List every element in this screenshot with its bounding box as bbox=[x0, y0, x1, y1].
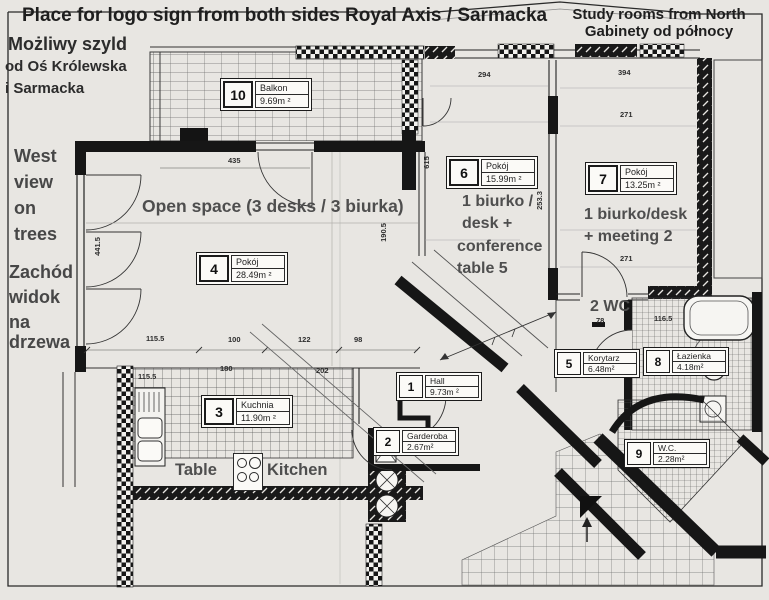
room6-note-1: 1 biurko / bbox=[462, 193, 533, 211]
room-name: W.C. bbox=[654, 443, 706, 454]
room-label-pokoj-6: 6 Pokój 15.99m ² bbox=[446, 156, 538, 189]
room-area: 9.69m ² bbox=[256, 95, 308, 107]
room-name: Korytarz bbox=[584, 353, 636, 364]
title-study-rooms: Study rooms from North bbox=[556, 6, 762, 23]
room-name: Pokój bbox=[232, 256, 284, 269]
zachod-note-1: Zachód bbox=[9, 262, 73, 283]
west-note-4: trees bbox=[14, 224, 57, 245]
dimension-label: 116.5 bbox=[654, 314, 672, 323]
dimension-label: 190.5 bbox=[379, 223, 388, 242]
zachod-note-2: widok bbox=[9, 287, 60, 308]
room-number: 6 bbox=[449, 159, 479, 186]
room-name: Balkon bbox=[256, 82, 308, 95]
room-area: 15.99m ² bbox=[482, 173, 534, 185]
title-gabinety: Gabinety od północy bbox=[556, 23, 762, 40]
room-number: 5 bbox=[557, 352, 581, 375]
room6-note-2: desk + bbox=[462, 215, 512, 233]
dimension-label: 253.3 bbox=[535, 191, 544, 210]
room-name: Kuchnia bbox=[237, 399, 289, 412]
room-number: 10 bbox=[223, 81, 253, 108]
dimension-label: 100 bbox=[228, 335, 241, 344]
room-area: 6.48m² bbox=[584, 364, 636, 374]
room-name: Pokój bbox=[621, 166, 673, 179]
dimension-label: 271 bbox=[620, 110, 633, 119]
kitchen-sink-icon bbox=[138, 418, 162, 438]
floor-plan-page: { "page": { "background": "#e8e6e2", "in… bbox=[0, 0, 769, 600]
west-note-3: on bbox=[14, 198, 36, 219]
room7-note-2: + meeting 2 bbox=[584, 228, 672, 246]
kitchen-sink-icon bbox=[138, 441, 162, 461]
dimension-label: 115.5 bbox=[138, 372, 156, 381]
dimension-label: 122 bbox=[298, 335, 311, 344]
dimension-label: 180 bbox=[220, 364, 233, 373]
room-label-pokoj-7: 7 Pokój 13.25m ² bbox=[585, 162, 677, 195]
room-area: 13.25m ² bbox=[621, 179, 673, 191]
room-name: Pokój bbox=[482, 160, 534, 173]
title-logo-sign: Place for logo sign from both sides Roya… bbox=[22, 5, 547, 27]
room-area: 2.67m² bbox=[403, 442, 455, 452]
west-note-2: view bbox=[14, 172, 53, 193]
room-name: Hall bbox=[426, 376, 478, 387]
dimension-label: 115.5 bbox=[146, 334, 164, 343]
stove-icon bbox=[233, 453, 263, 491]
room-name: Łazienka bbox=[673, 351, 725, 362]
room-number: 9 bbox=[627, 442, 651, 465]
room-label-wc: 9 W.C. 2.28m² bbox=[624, 439, 710, 468]
table-note: Table bbox=[175, 461, 217, 480]
dimension-label: 441.5 bbox=[93, 237, 102, 256]
dimension-label: 78 bbox=[596, 316, 604, 325]
dimension-label: 435 bbox=[228, 156, 241, 165]
kitchen-note: Kitchen bbox=[267, 461, 328, 480]
room-number: 3 bbox=[204, 398, 234, 425]
zachod-note-3: na bbox=[9, 312, 30, 333]
left-note-mozliwy-szyld: Możliwy szyld bbox=[8, 34, 127, 55]
room6-note-3: conference bbox=[457, 238, 542, 256]
bathtub-icon bbox=[684, 296, 754, 340]
room-number: 1 bbox=[399, 375, 423, 398]
room-area: 2.28m² bbox=[654, 454, 706, 464]
dimension-label: 98 bbox=[354, 335, 362, 344]
left-note-od-os: od Oś Królewska bbox=[5, 58, 127, 75]
room-label-korytarz: 5 Korytarz 6.48m² bbox=[554, 349, 640, 378]
dimension-label: 394 bbox=[618, 68, 631, 77]
room-area: 9.73m ² bbox=[426, 387, 478, 397]
room-area: 28.49m ² bbox=[232, 269, 284, 281]
room-label-balkon: 10 Balkon 9.69m ² bbox=[220, 78, 312, 111]
dimension-label: 202 bbox=[316, 366, 329, 375]
dimension-label: 271 bbox=[620, 254, 633, 263]
room-area: 4.18m² bbox=[673, 362, 725, 372]
room-label-pokoj-4: 4 Pokój 28.49m ² bbox=[196, 252, 288, 285]
dimension-label: 615 bbox=[422, 156, 431, 169]
room-name: Garderoba bbox=[403, 431, 455, 442]
open-space-note: Open space (3 desks / 3 biurka) bbox=[142, 196, 404, 216]
room-label-lazienka: 8 Łazienka 4.18m² bbox=[643, 347, 729, 376]
room-number: 4 bbox=[199, 255, 229, 282]
floor-plan-drawing bbox=[0, 0, 769, 600]
room-number: 7 bbox=[588, 165, 618, 192]
left-note-i-sarmacka: i Sarmacka bbox=[5, 80, 84, 97]
room-label-kuchnia: 3 Kuchnia 11.90m ² bbox=[201, 395, 293, 428]
room-label-hall: 1 Hall 9.73m ² bbox=[396, 372, 482, 401]
dimension-label: 294 bbox=[478, 70, 491, 79]
wc-count-note: 2 WC bbox=[590, 298, 630, 316]
room6-note-4: table 5 bbox=[457, 260, 508, 278]
zachod-note-4: drzewa bbox=[9, 332, 70, 353]
room-number: 2 bbox=[376, 430, 400, 453]
room-area: 11.90m ² bbox=[237, 412, 289, 424]
room7-note-1: 1 biurko/desk bbox=[584, 206, 687, 224]
room-number: 8 bbox=[646, 350, 670, 373]
west-note-1: West bbox=[14, 146, 57, 167]
room-label-garderoba: 2 Garderoba 2.67m² bbox=[373, 427, 459, 456]
